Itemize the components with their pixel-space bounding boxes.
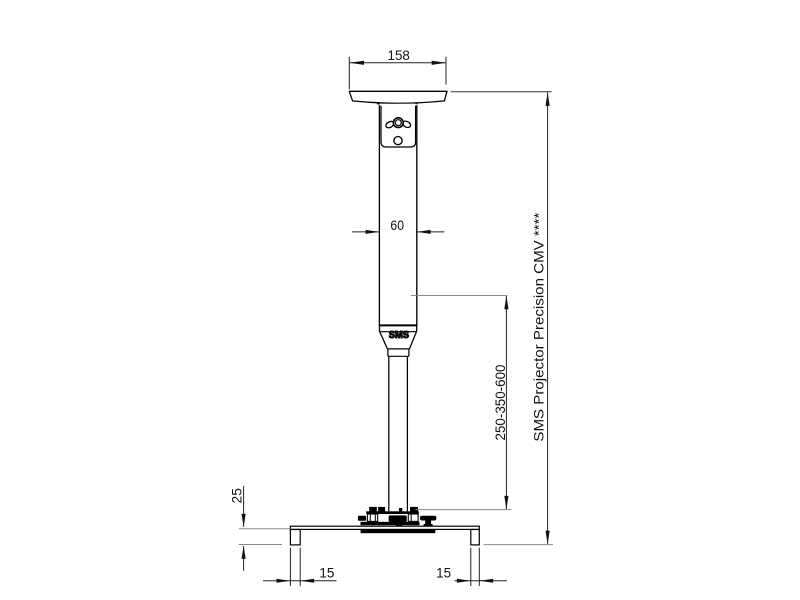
svg-text:SMS Projector Precision CMV **: SMS Projector Precision CMV ****	[531, 212, 547, 442]
svg-text:SMS: SMS	[389, 330, 409, 341]
svg-text:250-350-600: 250-350-600	[492, 364, 508, 440]
svg-text:60: 60	[390, 217, 404, 233]
svg-text:158: 158	[388, 47, 411, 63]
svg-text:15: 15	[436, 564, 451, 580]
svg-text:25: 25	[228, 488, 244, 504]
svg-text:15: 15	[319, 564, 334, 580]
